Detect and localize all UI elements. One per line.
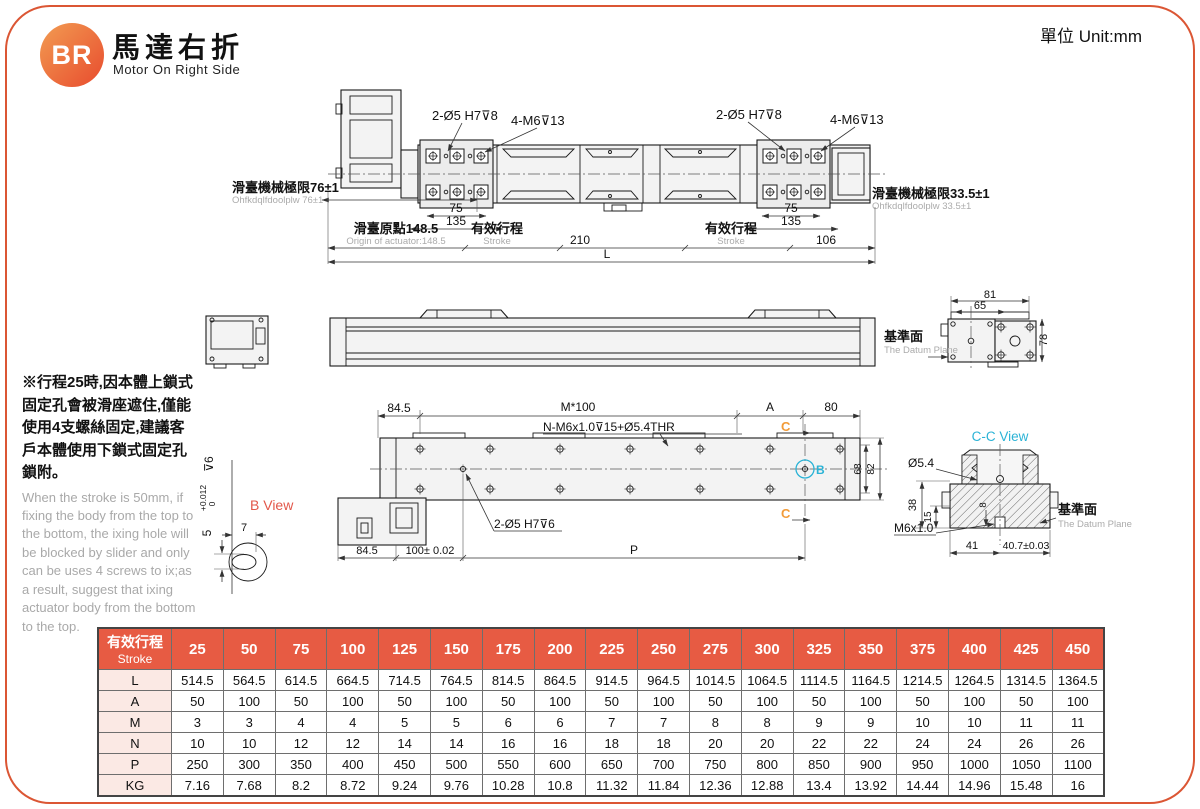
- spec-header-row: 有效行程Stroke255075100125150175200225250275…: [98, 628, 1104, 670]
- spec-cell: 12: [327, 733, 379, 754]
- spec-cell: 1364.5: [1052, 670, 1104, 691]
- spec-cell: 5: [430, 712, 482, 733]
- spec-cell: 12: [275, 733, 327, 754]
- spec-cell: 250: [172, 754, 224, 775]
- spec-cell: 26: [1000, 733, 1052, 754]
- spec-cell: 18: [638, 733, 690, 754]
- stroke-column-header: 75: [275, 628, 327, 670]
- top-dowel-label-right: 2-Ø5 H7⊽8: [716, 107, 782, 122]
- spec-cell: 964.5: [638, 670, 690, 691]
- spec-table: 有效行程Stroke255075100125150175200225250275…: [97, 627, 1105, 797]
- spec-cell: 16: [482, 733, 534, 754]
- stroke-column-header: 300: [741, 628, 793, 670]
- spec-cell: 9.76: [430, 775, 482, 797]
- cc-dim-54: Ø5.4: [908, 456, 934, 470]
- top-view-drawing: 2-Ø5 H7⊽8 4-M6⊽13 2-Ø5 H7⊽8 4-M6⊽13 滑臺機械…: [232, 90, 990, 264]
- stroke-column-header: 450: [1052, 628, 1104, 670]
- spec-cell: 8: [741, 712, 793, 733]
- spec-cell: 10: [223, 733, 275, 754]
- cc-dim-41: 41: [966, 540, 978, 552]
- spec-cell: 1050: [1000, 754, 1052, 775]
- spec-cell: 500: [430, 754, 482, 775]
- spec-cell: 8.2: [275, 775, 327, 797]
- spec-row-N: N101012121414161618182020222224242626: [98, 733, 1104, 754]
- spec-cell: 22: [793, 733, 845, 754]
- stroke-header-cell: 有效行程Stroke: [98, 628, 172, 670]
- spec-cell: 12.88: [741, 775, 793, 797]
- spec-cell: 16: [1052, 775, 1104, 797]
- spec-cell: 8.72: [327, 775, 379, 797]
- section-c-bottom: C: [781, 506, 791, 521]
- spec-cell: 1314.5: [1000, 670, 1052, 691]
- b-view-marker: B: [816, 463, 825, 477]
- spec-cell: 100: [1052, 691, 1104, 712]
- dim-A: A: [766, 400, 774, 414]
- dim-68: 68: [853, 463, 864, 475]
- stroke-column-header: 25: [172, 628, 224, 670]
- stroke-column-header: 100: [327, 628, 379, 670]
- spec-cell: 6: [534, 712, 586, 733]
- spec-cell: 50: [275, 691, 327, 712]
- spec-cell: 8: [689, 712, 741, 733]
- origin-label-zh: 滑臺原點148.5: [354, 221, 439, 236]
- cc-dim-407: 40.7±0.03: [1003, 540, 1050, 552]
- dim-m100: M*100: [561, 400, 596, 414]
- spec-cell: 50: [897, 691, 949, 712]
- spec-cell: 6: [482, 712, 534, 733]
- spec-cell: 914.5: [586, 670, 638, 691]
- b-tol-lower: 0: [207, 501, 217, 506]
- spec-cell: 50: [172, 691, 224, 712]
- b-view-title: B View: [250, 497, 294, 513]
- dim-100: 100± 0.02: [406, 545, 455, 557]
- spec-cell: 10.28: [482, 775, 534, 797]
- spec-cell: 864.5: [534, 670, 586, 691]
- spec-cell: 11.84: [638, 775, 690, 797]
- spec-cell: 20: [689, 733, 741, 754]
- b-view-drawing: B View 7 ⊽6 +0.012 0 5: [198, 456, 294, 594]
- dim-210: 210: [570, 233, 590, 247]
- dim-106: 106: [816, 233, 836, 247]
- spec-cell: 1164.5: [845, 670, 897, 691]
- stroke-column-header: 200: [534, 628, 586, 670]
- spec-cell: 950: [897, 754, 949, 775]
- spec-cell: 11: [1052, 712, 1104, 733]
- spec-cell: 3: [223, 712, 275, 733]
- spec-cell: 10.8: [534, 775, 586, 797]
- spec-cell: 26: [1052, 733, 1104, 754]
- mech-limit-right-en: Ohfkdqlfdoolplw 33.5±1: [872, 201, 971, 212]
- dim-135-left: 135: [446, 214, 466, 228]
- spec-cell: 7.16: [172, 775, 224, 797]
- row-label: A: [98, 691, 172, 712]
- dim-65: 65: [974, 300, 986, 312]
- stroke-label-zh-2: 有效行程: [705, 221, 757, 236]
- spec-row-A: A501005010050100501005010050100501005010…: [98, 691, 1104, 712]
- spec-row-L: L514.5564.5614.5664.5714.5764.5814.5864.…: [98, 670, 1104, 691]
- spec-cell: 350: [275, 754, 327, 775]
- spec-cell: 7: [586, 712, 638, 733]
- spec-cell: 14.44: [897, 775, 949, 797]
- spec-cell: 16: [534, 733, 586, 754]
- spec-cell: 300: [223, 754, 275, 775]
- spec-cell: 1214.5: [897, 670, 949, 691]
- spec-cell: 10: [172, 733, 224, 754]
- side-datum-en: The Datum Plane: [884, 345, 958, 356]
- spec-cell: 4: [327, 712, 379, 733]
- spec-cell: 400: [327, 754, 379, 775]
- spec-cell: 600: [534, 754, 586, 775]
- row-label: N: [98, 733, 172, 754]
- n-holes-label: N-M6x1.0⊽15+Ø5.4THR: [543, 420, 675, 434]
- spec-cell: 100: [223, 691, 275, 712]
- b-dim-7: 7: [241, 522, 247, 534]
- spec-cell: 5: [379, 712, 431, 733]
- stroke-column-header: 425: [1000, 628, 1052, 670]
- side-view-drawing: 81 65 78 基準面 The Datum Plane: [206, 289, 1050, 368]
- top-screw-label-right: 4-M6⊽13: [830, 112, 884, 127]
- b-dim-5: 5: [200, 529, 214, 536]
- spec-cell: 764.5: [430, 670, 482, 691]
- dim-75-right: 75: [784, 201, 798, 215]
- spec-cell: 100: [741, 691, 793, 712]
- row-label: M: [98, 712, 172, 733]
- spec-cell: 4: [275, 712, 327, 733]
- spec-cell: 850: [793, 754, 845, 775]
- stroke-column-header: 50: [223, 628, 275, 670]
- stroke-label-en-2: Stroke: [717, 236, 744, 247]
- spec-cell: 814.5: [482, 670, 534, 691]
- spec-cell: 1000: [948, 754, 1000, 775]
- spec-cell: 100: [948, 691, 1000, 712]
- b-depth: ⊽6: [202, 456, 216, 472]
- spec-cell: 900: [845, 754, 897, 775]
- cc-view-title: C-C View: [972, 429, 1029, 444]
- spec-cell: 100: [327, 691, 379, 712]
- stroke-column-header: 150: [430, 628, 482, 670]
- spec-cell: 100: [534, 691, 586, 712]
- technical-drawings: 2-Ø5 H7⊽8 4-M6⊽13 2-Ø5 H7⊽8 4-M6⊽13 滑臺機械…: [0, 0, 1200, 620]
- stroke-column-header: 275: [689, 628, 741, 670]
- spec-cell: 50: [689, 691, 741, 712]
- stroke-column-header: 225: [586, 628, 638, 670]
- spec-cell: 13.4: [793, 775, 845, 797]
- spec-cell: 14.96: [948, 775, 1000, 797]
- stroke-column-header: 400: [948, 628, 1000, 670]
- spec-cell: 50: [379, 691, 431, 712]
- spec-cell: 14: [379, 733, 431, 754]
- spec-cell: 15.48: [1000, 775, 1052, 797]
- row-label: L: [98, 670, 172, 691]
- spec-row-P: P250300350400450500550600650700750800850…: [98, 754, 1104, 775]
- spec-cell: 11: [1000, 712, 1052, 733]
- datasheet-page: BR 馬達右折 Motor On Right Side 單位 Unit:mm ※…: [0, 0, 1200, 809]
- spec-cell: 564.5: [223, 670, 275, 691]
- dim-845-bottom: 84.5: [356, 545, 377, 557]
- spec-cell: 9.24: [379, 775, 431, 797]
- spec-cell: 9: [845, 712, 897, 733]
- spec-cell: 514.5: [172, 670, 224, 691]
- spec-cell: 24: [897, 733, 949, 754]
- row-label: P: [98, 754, 172, 775]
- spec-cell: 700: [638, 754, 690, 775]
- dim-P: P: [630, 543, 638, 557]
- spec-cell: 7: [638, 712, 690, 733]
- spec-cell: 50: [793, 691, 845, 712]
- spec-cell: 550: [482, 754, 534, 775]
- mech-limit-right-zh: 滑臺機械極限33.5±1: [872, 186, 990, 201]
- side-datum-zh: 基準面: [883, 329, 923, 344]
- stroke-column-header: 250: [638, 628, 690, 670]
- spec-cell: 50: [1000, 691, 1052, 712]
- stroke-column-header: 175: [482, 628, 534, 670]
- stroke-column-header: 325: [793, 628, 845, 670]
- cc-view-drawing: C-C View Ø5.4 38 15 8 M6x1.0 4: [894, 429, 1132, 557]
- spec-cell: 450: [379, 754, 431, 775]
- spec-row-M: M3344556677889910101111: [98, 712, 1104, 733]
- spec-cell: 11.32: [586, 775, 638, 797]
- spec-cell: 100: [845, 691, 897, 712]
- spec-cell: 1114.5: [793, 670, 845, 691]
- bottom-dowel-label: 2-Ø5 H7⊽6: [494, 517, 555, 531]
- dim-75-left: 75: [449, 201, 463, 215]
- stroke-column-header: 350: [845, 628, 897, 670]
- cc-m6-label: M6x1.0: [894, 521, 934, 535]
- spec-cell: 50: [482, 691, 534, 712]
- spec-cell: 20: [741, 733, 793, 754]
- stroke-column-header: 375: [897, 628, 949, 670]
- spec-cell: 750: [689, 754, 741, 775]
- cc-datum-en: The Datum Plane: [1058, 519, 1132, 530]
- spec-cell: 7.68: [223, 775, 275, 797]
- spec-cell: 9: [793, 712, 845, 733]
- dim-82: 82: [866, 463, 877, 475]
- stroke-label-zh-1: 有效行程: [471, 221, 523, 236]
- spec-cell: 50: [586, 691, 638, 712]
- spec-cell: 13.92: [845, 775, 897, 797]
- cc-dim-8: 8: [978, 502, 989, 507]
- spec-cell: 100: [638, 691, 690, 712]
- spec-cell: 1264.5: [948, 670, 1000, 691]
- stroke-label-en-1: Stroke: [483, 236, 510, 247]
- top-dowel-label-left: 2-Ø5 H7⊽8: [432, 108, 498, 123]
- spec-cell: 650: [586, 754, 638, 775]
- stroke-column-header: 125: [379, 628, 431, 670]
- dim-78: 78: [1038, 334, 1050, 346]
- spec-cell: 714.5: [379, 670, 431, 691]
- spec-cell: 22: [845, 733, 897, 754]
- top-screw-label-left: 4-M6⊽13: [511, 113, 565, 128]
- spec-cell: 14: [430, 733, 482, 754]
- spec-cell: 3: [172, 712, 224, 733]
- spec-cell: 100: [430, 691, 482, 712]
- dim-L: L: [604, 247, 611, 261]
- spec-cell: 1014.5: [689, 670, 741, 691]
- spec-cell: 12.36: [689, 775, 741, 797]
- cc-dim-38: 38: [907, 499, 919, 511]
- spec-cell: 18: [586, 733, 638, 754]
- mech-limit-left-en: Ohfkdqlfdoolplw 76±1: [232, 195, 323, 206]
- cc-datum-zh: 基準面: [1057, 502, 1097, 517]
- dim-135-right: 135: [781, 214, 801, 228]
- spec-row-KG: KG7.167.688.28.729.249.7610.2810.811.321…: [98, 775, 1104, 797]
- spec-cell: 1100: [1052, 754, 1104, 775]
- spec-cell: 614.5: [275, 670, 327, 691]
- spec-cell: 664.5: [327, 670, 379, 691]
- dim-845-top: 84.5: [387, 401, 411, 415]
- row-label: KG: [98, 775, 172, 797]
- mech-limit-left-zh: 滑臺機械極限76±1: [232, 180, 339, 195]
- spec-cell: 24: [948, 733, 1000, 754]
- spec-cell: 10: [948, 712, 1000, 733]
- spec-cell: 800: [741, 754, 793, 775]
- bottom-view-drawing: B 84.5 M*100 A 80 N-M6x1.0⊽15+Ø5.4THR C …: [338, 400, 888, 561]
- dim-80: 80: [824, 400, 838, 414]
- spec-cell: 10: [897, 712, 949, 733]
- section-c-top: C: [781, 419, 791, 434]
- origin-label-en: Origin of actuator:148.5: [346, 236, 445, 247]
- spec-cell: 1064.5: [741, 670, 793, 691]
